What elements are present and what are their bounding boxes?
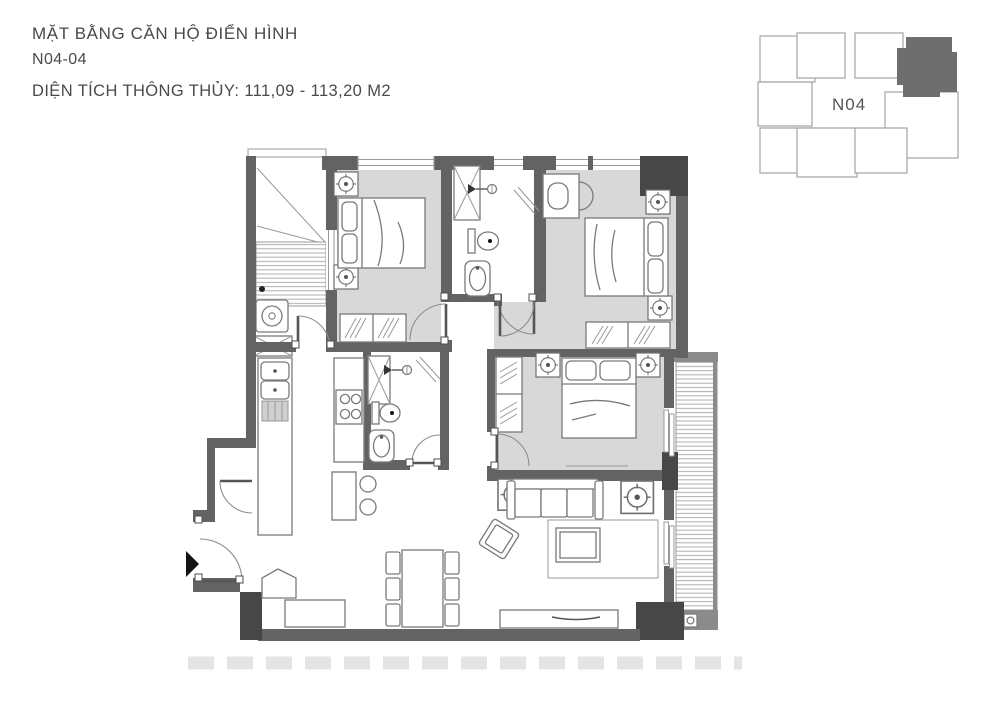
- keyplan-highlighted-unit: [897, 37, 957, 97]
- kitchen-sink-icon: [261, 362, 289, 399]
- window: [593, 156, 640, 170]
- keyplan-label: N04: [832, 95, 866, 114]
- deck-stripes: [256, 242, 326, 306]
- deck-stripes: [676, 362, 714, 610]
- window: [494, 156, 523, 170]
- toilet-icon: [372, 402, 400, 424]
- armchair: [478, 518, 519, 559]
- plan-title: MẶT BẰNG CĂN HỘ ĐIỂN HÌNH: [32, 24, 391, 44]
- area-info: DIỆN TÍCH THÔNG THỦY: 111,09 - 113,20 M2: [32, 82, 391, 101]
- keyplan-unit: [855, 33, 903, 78]
- wardrobe: [586, 322, 670, 348]
- dining-chair: [445, 604, 459, 626]
- vent-shaft: [368, 356, 390, 404]
- sink-icon: [369, 430, 394, 462]
- stove-icon: [336, 390, 362, 424]
- keyplan-unit: [797, 33, 845, 78]
- entry-door-swing: [200, 539, 242, 581]
- drying-rack-line: [257, 168, 325, 242]
- dining-chair: [445, 578, 459, 600]
- unit-code: N04-04: [32, 51, 391, 69]
- double-bed: [562, 358, 636, 438]
- shower-screen: [416, 357, 440, 382]
- nightstand-lamp-icon: [636, 353, 660, 377]
- dining-table: [402, 550, 443, 627]
- window: [358, 156, 434, 170]
- toilet-icon: [468, 229, 499, 253]
- sofa: [507, 479, 603, 519]
- wardrobe: [340, 314, 406, 342]
- door-swing: [220, 481, 252, 513]
- nightstand-lamp-icon: [536, 353, 560, 377]
- keyplan-unit: [758, 82, 812, 126]
- dish-rack: [262, 401, 288, 421]
- left-utility-balcony: [248, 149, 326, 356]
- dining-area: [386, 550, 459, 627]
- door-swing: [298, 316, 330, 348]
- washing-machine-icon: [256, 300, 288, 332]
- bathroom-1: [454, 166, 539, 296]
- floor-drain-icon: [259, 286, 265, 292]
- double-bed: [338, 198, 425, 268]
- dining-chair: [386, 604, 400, 626]
- double-bed: [585, 218, 668, 296]
- drying-rack-line: [257, 226, 325, 244]
- bar-stool: [360, 499, 376, 515]
- bathroom-2: [368, 356, 440, 462]
- dining-chair: [445, 552, 459, 574]
- living-room: [478, 479, 658, 628]
- side-table-lamp-icon: [621, 481, 653, 513]
- sliding-door: [664, 410, 674, 456]
- keyplan: N04: [758, 33, 958, 177]
- nightstand-lamp-icon: [648, 296, 672, 320]
- kitchen: [258, 358, 376, 535]
- coffee-table: [556, 528, 600, 562]
- dining-chair: [386, 552, 400, 574]
- sink-icon: [465, 261, 490, 296]
- bar-stool: [360, 476, 376, 492]
- balcony-outer-rail: [713, 362, 718, 610]
- nightstand-lamp-icon: [646, 190, 670, 214]
- floorplan-page: MẶT BẰNG CĂN HỘ ĐIỂN HÌNH N04-04 DIỆN TÍ…: [0, 0, 1000, 707]
- kitchen-island: [332, 472, 356, 520]
- window: [556, 156, 588, 170]
- title-block: MẶT BẰNG CĂN HỘ ĐIỂN HÌNH N04-04 DIỆN TÍ…: [32, 24, 391, 101]
- sliding-door: [664, 522, 674, 568]
- balcony-railing: [248, 149, 326, 157]
- dining-chair: [386, 578, 400, 600]
- nightstand-lamp-icon: [334, 172, 358, 196]
- entrance-arrow-icon: [186, 551, 199, 577]
- floorplan-canvas: N04: [0, 0, 1000, 707]
- shoe-cabinet: [262, 569, 345, 627]
- vent-shaft: [454, 166, 480, 220]
- wardrobe: [496, 357, 522, 432]
- keyplan-unit: [855, 128, 907, 173]
- drain-box: [684, 614, 697, 627]
- keyplan-unit: [797, 128, 857, 177]
- tv-console: [500, 610, 618, 628]
